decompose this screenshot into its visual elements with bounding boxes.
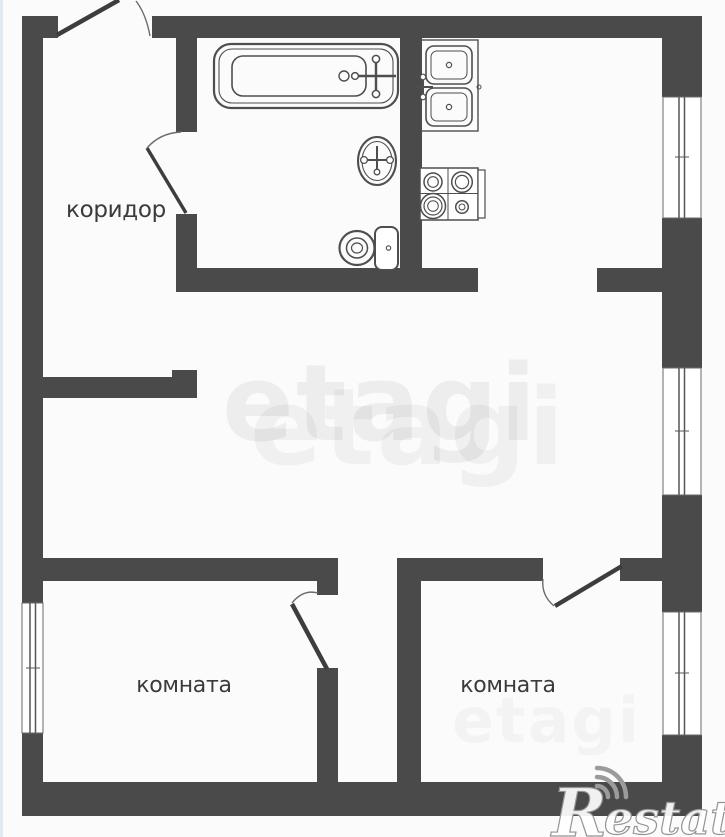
wall-room-left-top — [22, 558, 338, 581]
fixtures — [214, 40, 485, 270]
toilet-icon — [340, 227, 399, 270]
wall-left-upper — [22, 16, 43, 603]
floor-plan-image: etagi etagi etagi — [0, 0, 725, 837]
door-room-left — [292, 592, 327, 669]
label-room-left: комната — [136, 673, 231, 698]
door-room-right — [543, 566, 622, 606]
agency-watermark: etagi etagi etagi — [222, 342, 641, 757]
wall-corridor-bath-upper — [176, 38, 197, 132]
window-room-left — [22, 603, 43, 733]
wall-room-right-top-right — [620, 558, 662, 581]
brand-text: estate — [604, 791, 725, 837]
wall-room-left-right-lower — [317, 668, 338, 782]
window-kitchen — [663, 97, 701, 218]
floor-plan: etagi etagi etagi — [0, 0, 725, 837]
wall-kitchen-south-right — [597, 268, 662, 292]
watermark-echo-text: etagi — [250, 366, 566, 489]
wall-bath-kitchen-divider — [400, 38, 422, 268]
brand-initial: R — [550, 774, 607, 837]
kitchen-sink-icon — [416, 40, 481, 131]
wall-right-1 — [662, 16, 702, 97]
wall-right-3 — [662, 495, 702, 612]
wall-corridor-south-step — [172, 370, 197, 378]
stove-icon — [420, 168, 485, 220]
bathtub-icon — [214, 44, 398, 108]
wall-room-right-left — [397, 558, 421, 782]
door-entrance — [57, 0, 150, 36]
wall-right-2 — [662, 218, 702, 368]
wall-room-left-door-stub — [317, 581, 338, 595]
window-hall — [663, 368, 701, 495]
photo-edge-strip — [0, 0, 3, 837]
wall-bath-kitchen-south — [176, 268, 478, 292]
label-room-right: комната — [460, 673, 555, 698]
washbasin-icon — [358, 137, 396, 185]
window-room-right — [663, 612, 701, 735]
label-corridor: коридор — [66, 197, 166, 223]
wall-corridor-south — [22, 377, 197, 398]
wall-top-main — [152, 16, 702, 38]
